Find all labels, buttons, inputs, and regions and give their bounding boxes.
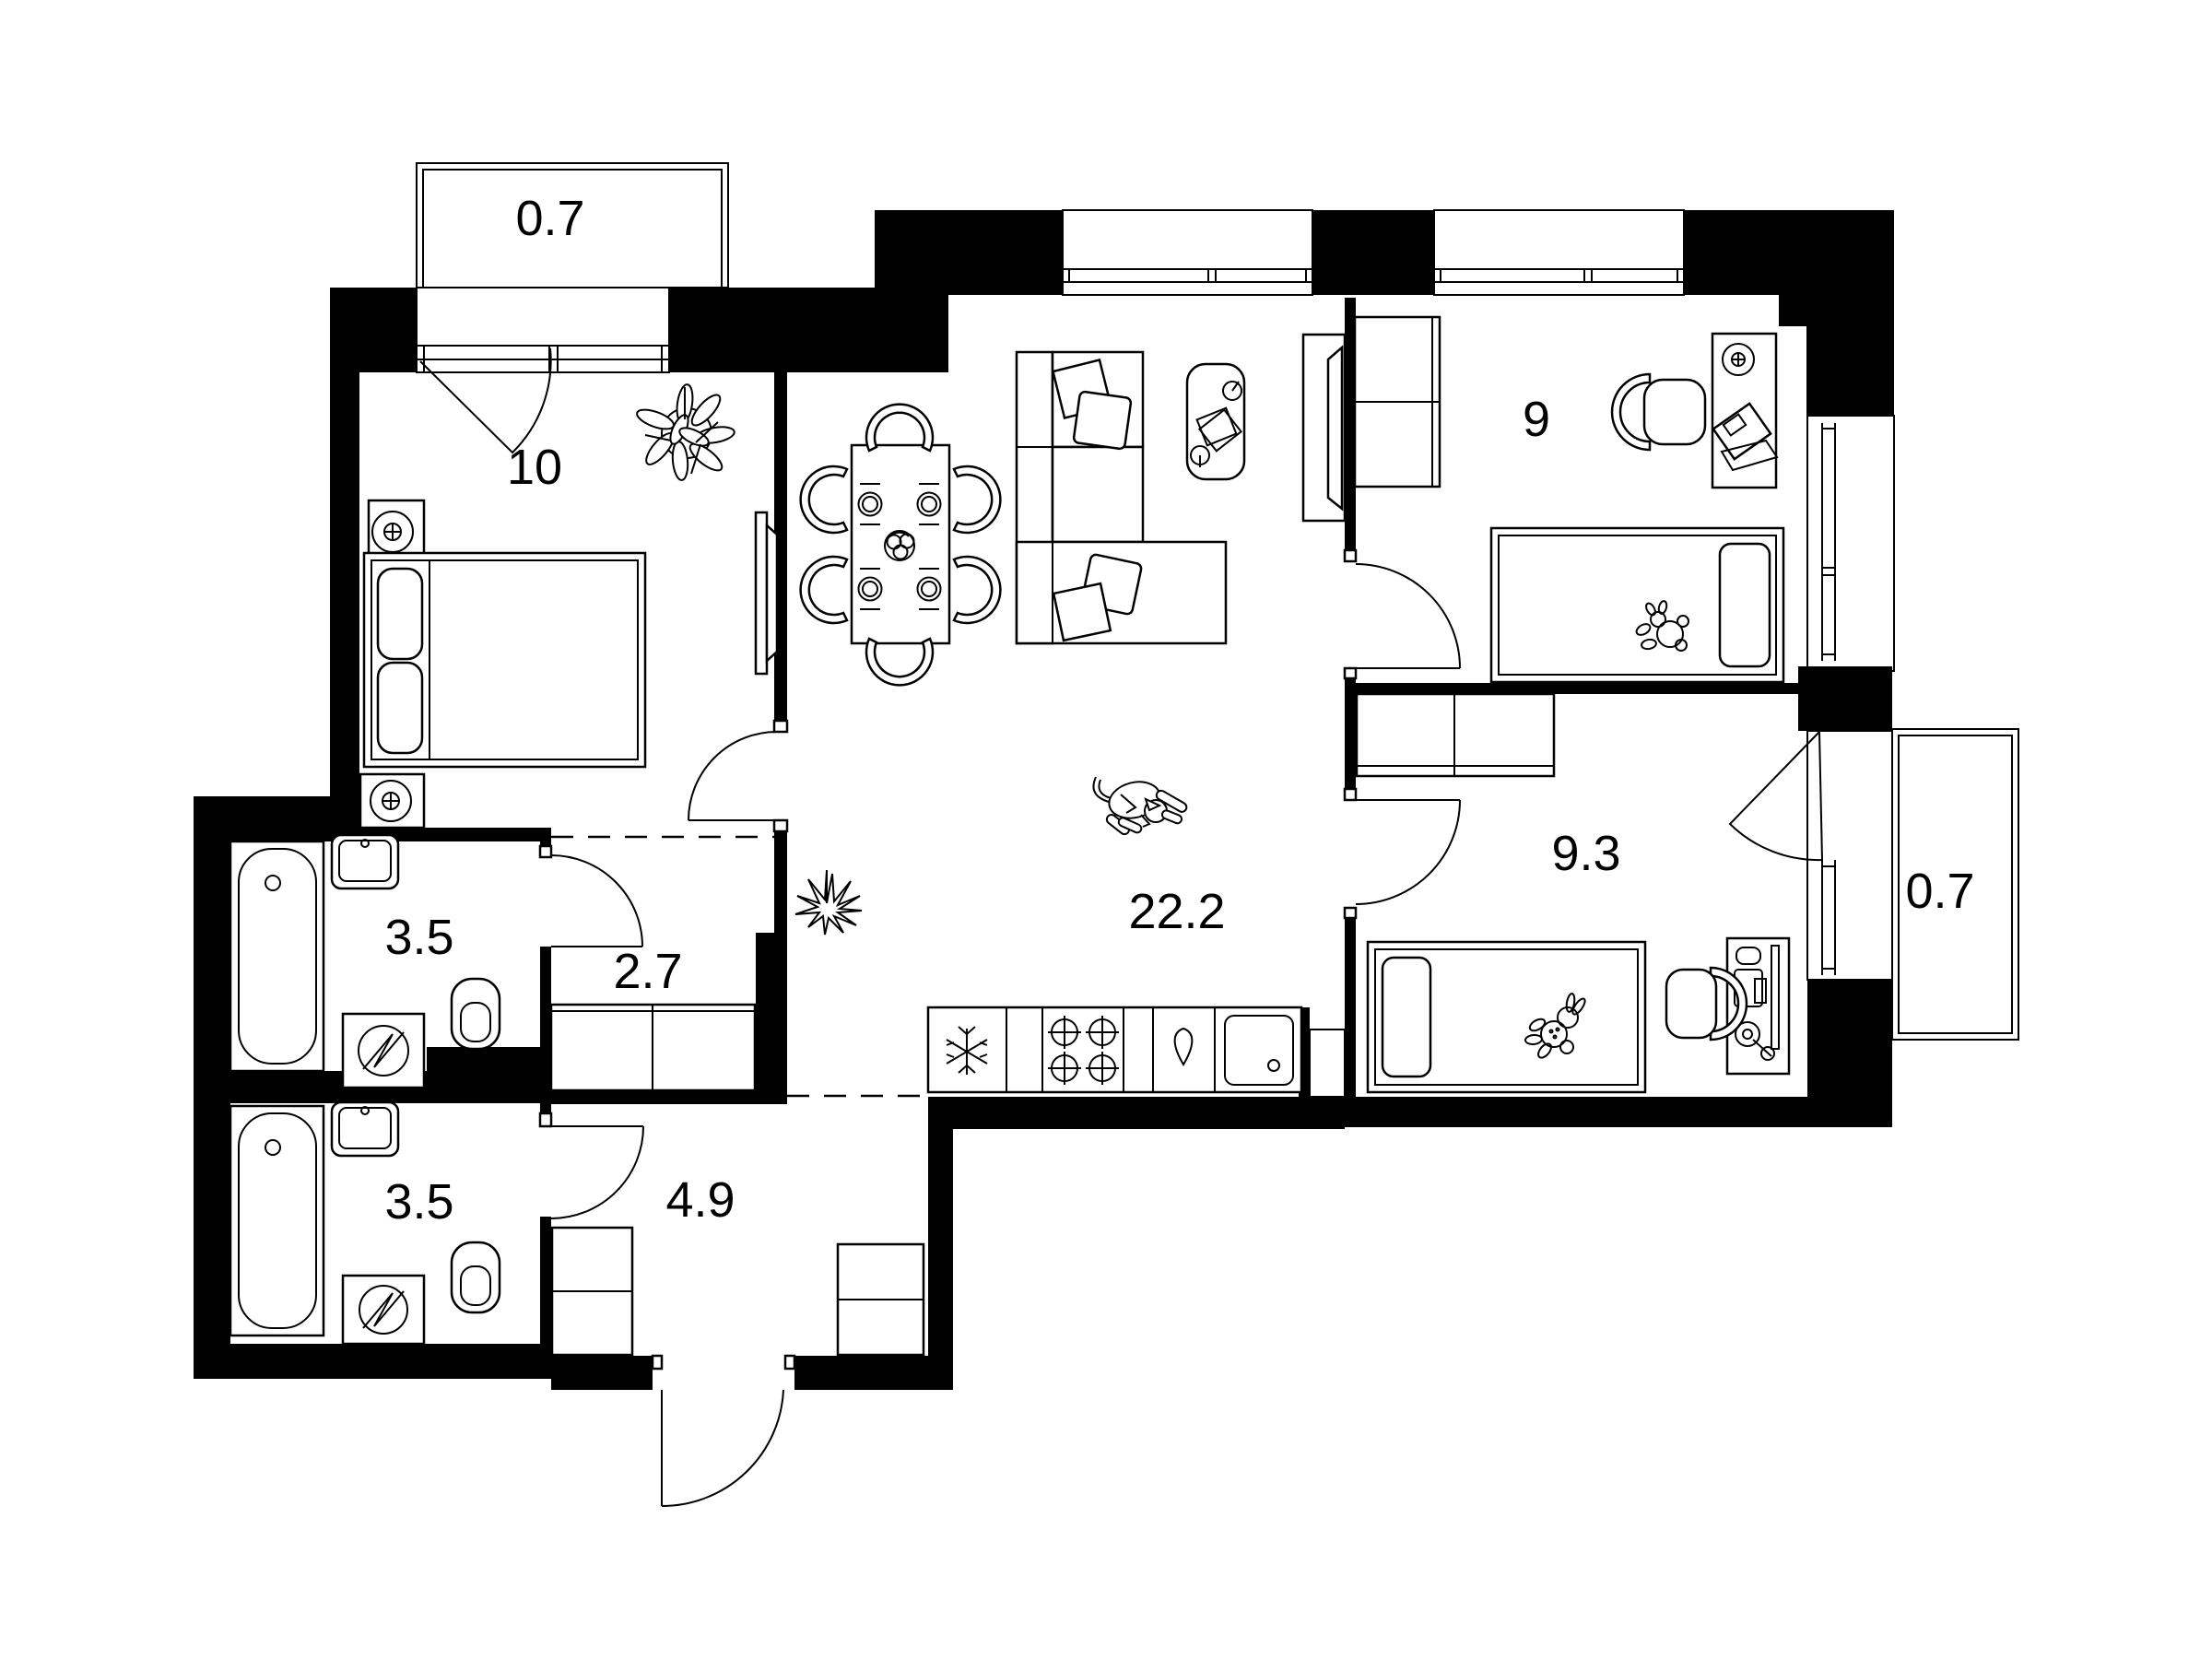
svg-text:0.7: 0.7 xyxy=(1905,864,1974,919)
svg-text:3.5: 3.5 xyxy=(384,910,453,965)
svg-text:3.5: 3.5 xyxy=(384,1174,453,1230)
svg-text:0.7: 0.7 xyxy=(515,191,584,246)
svg-text:9: 9 xyxy=(1523,392,1550,447)
svg-text:22.2: 22.2 xyxy=(1128,884,1225,939)
svg-text:9.3: 9.3 xyxy=(1551,826,1620,881)
svg-text:10: 10 xyxy=(507,440,562,495)
svg-text:4.9: 4.9 xyxy=(665,1172,735,1228)
svg-text:2.7: 2.7 xyxy=(613,944,682,999)
